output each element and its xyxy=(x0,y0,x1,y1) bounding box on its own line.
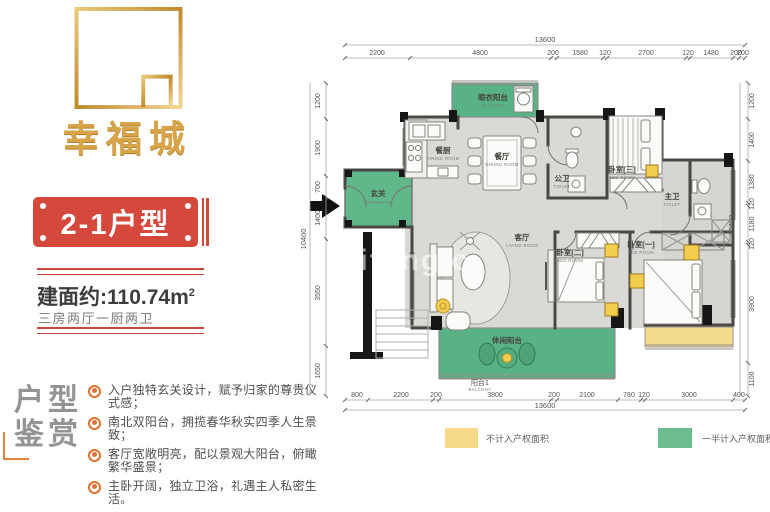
dim-bottom-7: 120 xyxy=(638,392,650,399)
room-label-toilet-master-en: TOILET xyxy=(664,202,681,207)
room-label-bedroom1-en: BED ROOM xyxy=(628,250,654,255)
room-label-dining-en: DINING ROOM xyxy=(485,162,518,167)
area-unit-sup: 2 xyxy=(189,287,195,299)
dim-top-overall: 13600 xyxy=(535,35,556,44)
dim-bottom-6: 780 xyxy=(623,392,635,399)
dim-top-4: 120 xyxy=(599,50,611,57)
room-label-kitchen-en: DINING ROOM xyxy=(426,156,459,161)
banner-edge-line xyxy=(206,198,209,246)
dim-bottom-9: 400 xyxy=(733,392,745,399)
room-label-kitchen: 餐厨 xyxy=(435,145,451,155)
dim-bottom-0: 800 xyxy=(351,392,363,399)
dim-bottom-5: 2100 xyxy=(579,392,595,399)
brand-name: 幸福城 xyxy=(20,110,235,162)
dim-left-4: 3550 xyxy=(315,285,322,301)
watermark: meifang.c xyxy=(312,244,470,277)
room-label-toilet-public-en: TOILET xyxy=(554,184,571,189)
area-prefix: 建面约: xyxy=(37,286,107,309)
dim-right-2: 1380 xyxy=(749,174,756,190)
floor-plan: meifang.c 晾衣阳台 BALCONY 餐厨 DINING ROOM 餐厅… xyxy=(300,20,770,470)
legend-label-green: 一半计入产权面积 xyxy=(702,433,770,444)
swirl-bullet-icon xyxy=(88,481,101,494)
dim-bottom-1: 2200 xyxy=(393,392,409,399)
dim-top-6: 120 xyxy=(682,50,694,57)
room-label-bedroom3: 卧室[三] xyxy=(608,164,636,174)
banner-edge-line xyxy=(202,198,204,246)
room-label-balcony-bottom: 休闲阳台 xyxy=(491,335,522,345)
section-title-line1: 户型 xyxy=(12,384,84,418)
unit-type-banner: 2-1户型 xyxy=(33,197,198,247)
dim-right-overall: 10400 xyxy=(727,215,736,236)
dim-top-2: 200 xyxy=(547,50,559,57)
room-label-toilet-public: 公卫 xyxy=(555,174,570,183)
room-label-living: 客厅 xyxy=(514,232,530,242)
dim-right-7: 1100 xyxy=(749,371,756,386)
dim-right-5: 120 xyxy=(749,238,756,250)
list-item: 主卧开阔，独立卫浴，礼遇主人私密生活。 xyxy=(88,480,318,506)
dim-bottom-2: 200 xyxy=(430,392,442,399)
swirl-bullet-icon xyxy=(88,385,101,398)
room-label-living-en: LIVING ROOM xyxy=(506,243,538,248)
dim-right-6: 3900 xyxy=(749,296,756,312)
dim-left-2: 700 xyxy=(315,181,322,193)
brand-logo-seal xyxy=(72,6,185,110)
dim-top-9: 200 xyxy=(737,50,749,57)
dim-bottom-4: 200 xyxy=(548,392,560,399)
room-label-toilet-master: 主卫 xyxy=(665,191,680,201)
banner-dot xyxy=(185,235,191,241)
dim-top-1: 4800 xyxy=(472,50,488,57)
unit-type-label: 2-1户型 xyxy=(61,201,171,243)
dim-top-5: 2700 xyxy=(638,50,654,57)
swirl-bullet-icon xyxy=(88,449,101,462)
dim-left-0: 1200 xyxy=(315,93,322,109)
banner-dot xyxy=(185,203,191,209)
legend: 不计入产权面积 一半计入产权面积 xyxy=(445,428,770,448)
dim-bottom-overall: 13600 xyxy=(535,401,556,410)
list-item: 入户独特玄关设计，赋予归家的尊贵仪式感； xyxy=(88,384,318,410)
room-label-bedroom1: 卧室[一] xyxy=(627,239,655,249)
room-label-bedroom2: 卧室[二] xyxy=(556,247,584,257)
feature-text: 主卧开阔，独立卫浴，礼遇主人私密生活。 xyxy=(108,480,318,506)
feature-list: 入户独特玄关设计，赋予归家的尊贵仪式感； 南北双阳台，拥揽春华秋实四季人生景致；… xyxy=(88,384,318,512)
built-area: 建面约:110.74m2 xyxy=(37,281,195,311)
legend-swatch-yellow xyxy=(445,428,478,448)
dim-top-0: 2200 xyxy=(369,50,385,57)
area-value: 110.74 xyxy=(107,286,170,309)
room-label-balcony-top: 晾衣阳台 xyxy=(478,92,508,102)
dim-bottom-3: 3800 xyxy=(487,392,503,399)
room-layout-summary: 三房两厅一厨两卫 xyxy=(38,308,154,327)
dim-right-3: 120 xyxy=(749,198,756,210)
banner-dot xyxy=(40,203,46,209)
legend-label-yellow: 不计入产权面积 xyxy=(486,433,549,444)
banner-dot xyxy=(40,235,46,241)
area-unit: m xyxy=(170,286,189,309)
dim-right-0: 1200 xyxy=(749,93,756,109)
dim-left-1: 1900 xyxy=(315,140,322,156)
dim-right-4: 1180 xyxy=(749,216,756,231)
dim-left-3: 1400 xyxy=(315,210,322,226)
room-label-bedroom3-en: BED ROOM xyxy=(609,175,635,180)
room-label-entrance: 玄关 xyxy=(371,188,386,198)
room-label-balcony-top-en: BALCONY xyxy=(482,103,505,108)
room-label-bedroom2-en: BED ROOM xyxy=(557,258,583,263)
list-item: 南北双阳台，拥揽春华秋实四季人生景致； xyxy=(88,416,318,442)
separator-line xyxy=(37,268,204,275)
corner-bracket xyxy=(3,432,29,460)
dim-top-3: 1580 xyxy=(572,50,588,57)
brand-logo xyxy=(72,6,185,110)
separator-line xyxy=(37,327,204,334)
list-item: 客厅宽敞明亮，配以景观大阳台，俯瞰繁华盛景； xyxy=(88,448,318,474)
swirl-bullet-icon xyxy=(88,417,101,430)
dim-left-overall: 10400 xyxy=(300,229,308,250)
dim-right-1: 1400 xyxy=(749,132,756,148)
feature-text: 南北双阳台，拥揽春华秋实四季人生景致； xyxy=(108,416,318,442)
room-label-entrance-en: ENTRANCE xyxy=(365,200,391,205)
feature-text: 入户独特玄关设计，赋予归家的尊贵仪式感； xyxy=(108,384,318,410)
feature-text: 客厅宽敞明亮，配以景观大阳台，俯瞰繁华盛景； xyxy=(108,448,318,474)
dim-bottom-8: 3000 xyxy=(681,392,697,399)
dim-top-7: 1480 xyxy=(703,50,719,57)
legend-swatch-green xyxy=(658,428,692,448)
room-label-dining: 餐厅 xyxy=(494,151,510,161)
dim-balcony-label: 阳台1 xyxy=(471,378,489,387)
dim-left-5: 1650 xyxy=(315,363,322,379)
